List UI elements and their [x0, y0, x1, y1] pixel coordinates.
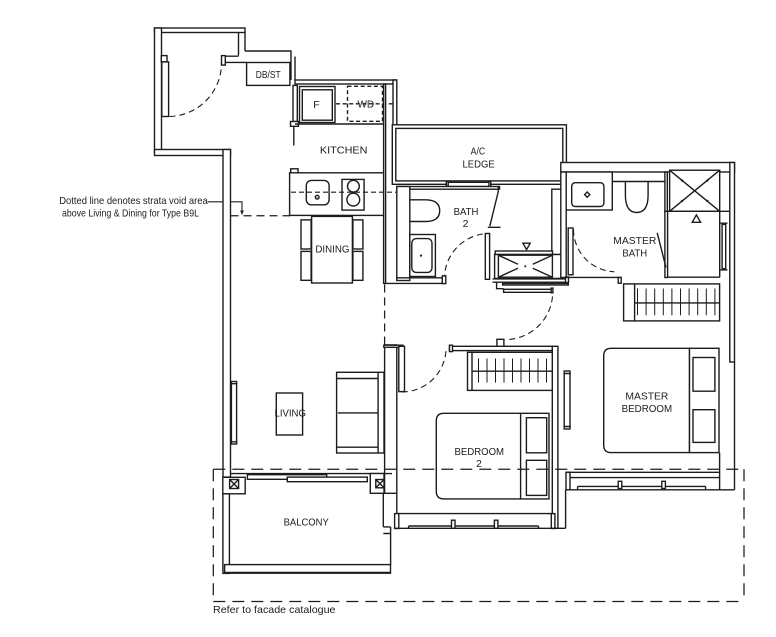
- svg-text:2: 2: [463, 218, 469, 230]
- svg-text:LIVING: LIVING: [275, 408, 306, 420]
- svg-text:BEDROOM: BEDROOM: [622, 403, 673, 415]
- svg-text:BATH: BATH: [454, 206, 479, 218]
- svg-text:F: F: [313, 99, 319, 111]
- svg-text:BATH: BATH: [622, 247, 647, 259]
- svg-text:Refer to facade catalogue: Refer to facade catalogue: [213, 604, 336, 616]
- svg-text:MASTER: MASTER: [613, 235, 656, 247]
- svg-text:WD: WD: [357, 98, 374, 110]
- svg-text:KITCHEN: KITCHEN: [320, 144, 368, 156]
- svg-text:DB/ST: DB/ST: [256, 69, 281, 81]
- svg-text:BEDROOM: BEDROOM: [455, 446, 505, 458]
- svg-text:LEDGE: LEDGE: [463, 158, 495, 170]
- svg-text:BALCONY: BALCONY: [284, 517, 329, 529]
- svg-text:A/C: A/C: [471, 145, 486, 157]
- svg-text:DINING: DINING: [315, 243, 349, 255]
- svg-text:2: 2: [476, 458, 482, 470]
- svg-text:MASTER: MASTER: [625, 391, 668, 403]
- svg-text:Dotted line denotes strata voi: Dotted line denotes strata void area: [59, 195, 208, 207]
- svg-text:above Living & Dining for Type: above Living & Dining for Type B9L: [62, 208, 199, 220]
